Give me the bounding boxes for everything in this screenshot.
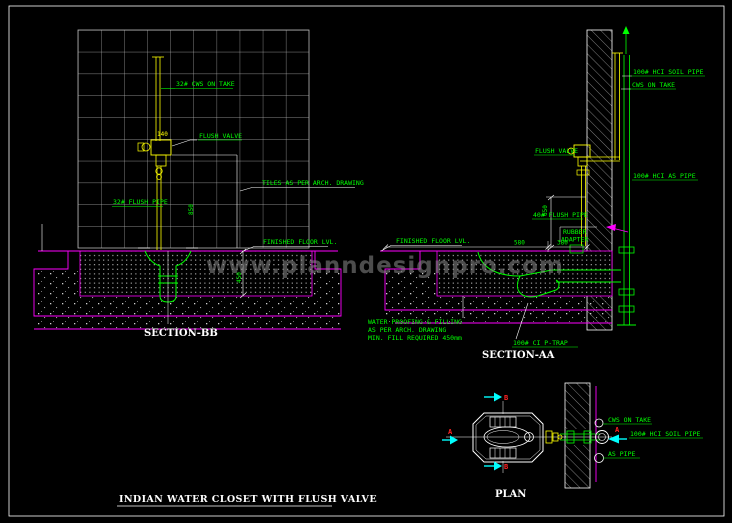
wc-pan-plan bbox=[473, 413, 543, 462]
plan-view: B B A A CWS ON TAKE 100# HCI SOIL PIPE A… bbox=[442, 383, 703, 500]
label-flush-valve-aa: FLUSH VALVE bbox=[535, 147, 578, 155]
section-aa-title: SECTION-AA bbox=[482, 350, 555, 361]
label-soil-pipe-plan: 100# HCI SOIL PIPE bbox=[630, 430, 701, 438]
label-waterproof-line3: MIN. FILL REQUIRED 450mm bbox=[368, 334, 462, 342]
section-bb-title: SECTION-BB bbox=[144, 328, 218, 339]
plan-title: PLAN bbox=[495, 489, 526, 500]
section-aa-view: 100# HCI SOIL PIPE CWS ON TAKE FLUSH VAL… bbox=[368, 26, 705, 361]
label-finished-floor-bb: FINISHED FLOOR LVL. bbox=[263, 238, 337, 246]
label-waterproof-line1: WATER PROOFING & FILLING bbox=[368, 318, 462, 326]
marker-b-top: B bbox=[504, 394, 508, 402]
footrest-top bbox=[490, 417, 516, 427]
dim-580-aa: 580 bbox=[514, 240, 525, 247]
watermark-text: www.planndesignpro.com bbox=[206, 253, 564, 279]
marker-b-bottom: B bbox=[504, 463, 508, 471]
marker-a-left: A bbox=[448, 428, 453, 436]
drawing-main-title: INDIAN WATER CLOSET WITH FLUSH VALVE bbox=[119, 494, 377, 505]
label-as-pipe-plan: AS PIPE bbox=[608, 450, 635, 458]
dim-380-aa: 380 bbox=[557, 240, 568, 247]
label-flush-valve-bb: FLUSH VALVE bbox=[199, 132, 242, 140]
section-bb-view: 32# CWS ON TAKE 140 FLUSH VALVE 32# FLUS… bbox=[34, 30, 364, 339]
dim-140-bb: 140 bbox=[157, 131, 168, 138]
label-finished-floor-aa: FINISHED FLOOR LVL. bbox=[396, 237, 470, 245]
label-cws-on-take-aa: CWS ON TAKE bbox=[632, 81, 675, 89]
label-as-pipe-aa: 100# HCI AS PIPE bbox=[633, 172, 696, 180]
cad-drawing-canvas[interactable]: 32# CWS ON TAKE 140 FLUSH VALVE 32# FLUS… bbox=[0, 0, 732, 523]
label-flush-pipe-bb: 32# FLUSH PIPE bbox=[113, 198, 168, 206]
label-soil-pipe-aa: 100# HCI SOIL PIPE bbox=[633, 68, 704, 76]
footrest-bottom bbox=[490, 448, 516, 458]
dim-650-aa: 650 bbox=[542, 205, 549, 216]
label-cws-on-take-bb: 32# CWS ON TAKE bbox=[176, 80, 235, 88]
dim-850-bb: 850 bbox=[188, 204, 195, 215]
label-tiles-bb: TILES AS PER ARCH. DRAWING bbox=[262, 179, 364, 187]
label-waterproof-line2: AS PER ARCH. DRAWING bbox=[368, 326, 446, 334]
marker-a-right: A bbox=[615, 426, 620, 434]
label-cws-on-take-plan: CWS ON TAKE bbox=[608, 416, 651, 424]
label-p-trap-aa: 100# CI P-TRAP bbox=[513, 339, 568, 347]
